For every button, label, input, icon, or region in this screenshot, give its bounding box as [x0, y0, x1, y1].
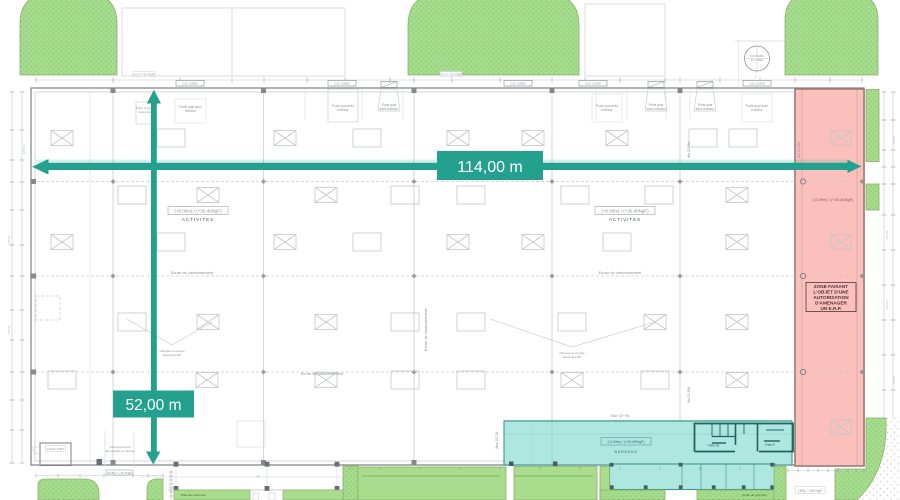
svg-text:ZONE FAISANT: ZONE FAISANT — [814, 284, 849, 289]
svg-text:UN E.R.P.: UN E.R.P. — [820, 306, 841, 311]
svg-text:Cell. LOEW: Cell. LOEW — [749, 82, 765, 86]
svg-text:Ecran de cantonnement: Ecran de cantonnement — [301, 371, 344, 376]
svg-text:Ecran de cantonnement: Ecran de cantonnement — [423, 308, 428, 351]
svg-text:niveleur: niveleur — [751, 108, 763, 112]
svg-text:52,00 m: 52,00 m — [125, 397, 181, 414]
svg-text:(-0.09m) / (+30.69NgF): (-0.09m) / (+30.69NgF) — [608, 440, 645, 444]
svg-text:Mur CF 94: Mur CF 94 — [611, 413, 631, 418]
svg-text:(+0.00m) / (+30.40NgF): (+0.00m) / (+30.40NgF) — [174, 209, 222, 214]
svg-text:Wa 23 PM: Wa 23 PM — [687, 142, 691, 158]
svg-text:BUREAUX: BUREAUX — [615, 450, 638, 454]
svg-text:R = 1500: R = 1500 — [751, 58, 764, 62]
svg-text:descentes EP: descentes EP — [163, 353, 182, 357]
svg-text:ACTIVITES: ACTIVITES — [609, 217, 641, 222]
svg-text:(+0.0 / +30.4NgF): (+0.0 / +30.4NgF) — [440, 73, 462, 77]
svg-text:personnel: personnel — [138, 110, 152, 114]
svg-text:avec niveleur: avec niveleur — [647, 107, 667, 111]
svg-text:44: 44 — [256, 475, 260, 479]
svg-text:Park P: Park P — [765, 443, 775, 447]
svg-text:125.50: 125.50 — [7, 235, 11, 244]
svg-text:Cell. LOEW: Cell. LOEW — [585, 82, 601, 86]
svg-text:125.50: 125.50 — [892, 375, 896, 384]
svg-text:125.50: 125.50 — [885, 230, 889, 239]
svg-text:114,00 m: 114,00 m — [457, 159, 523, 176]
svg-text:Ecran de cantonnement: Ecran de cantonnement — [171, 270, 214, 275]
svg-text:125.50: 125.50 — [7, 325, 11, 334]
svg-text:descentes EP: descentes EP — [563, 355, 582, 359]
svg-text:AUTORISATION: AUTORISATION — [813, 295, 849, 300]
svg-text:D'AMENAGER: D'AMENAGER — [815, 301, 847, 306]
svg-text:(TN) / +30.NgF: (TN) / +30.NgF — [798, 489, 823, 493]
svg-text:Mur CF 94: Mur CF 94 — [495, 432, 499, 449]
svg-text:niveleur: niveleur — [185, 109, 197, 113]
svg-text:niveleur: niveleur — [337, 108, 349, 112]
svg-text:125.50: 125.50 — [892, 135, 896, 144]
svg-text:avec niveleur: avec niveleur — [696, 107, 716, 111]
svg-text:Cell. LOEW: Cell. LOEW — [334, 82, 350, 86]
svg-text:(+0.00m) / (+30.40NgF): (+0.00m) / (+30.40NgF) — [601, 209, 649, 214]
svg-text:(+0.0 / +30.4NgF): (+0.0 / +30.4NgF) — [133, 73, 155, 77]
svg-text:Cell. LOEW: Cell. LOEW — [182, 82, 198, 86]
svg-text:125.50: 125.50 — [22, 145, 26, 154]
svg-text:niveleur: niveleur — [601, 108, 613, 112]
svg-text:Cell. LOEW: Cell. LOEW — [510, 82, 526, 86]
svg-text:avec niveleur: avec niveleur — [380, 107, 400, 111]
svg-text:Wa 23 PM: Wa 23 PM — [797, 142, 801, 158]
svg-text:démontable en attente: démontable en attente — [105, 449, 135, 453]
svg-text:Piste de roulement: Piste de roulement — [181, 493, 206, 497]
svg-text:(LDBL) / +30.0NgF: (LDBL) / +30.0NgF — [107, 471, 132, 475]
svg-text:ACTIVITES: ACTIVITES — [182, 217, 214, 222]
svg-text:Wa 23 PM: Wa 23 PM — [687, 387, 691, 403]
svg-text:LOCAL TGBT: LOCAL TGBT — [47, 447, 65, 451]
svg-text:Ecran de cantonnement: Ecran de cantonnement — [599, 270, 642, 275]
svg-text:(-0.09m) / (+30.40NgF): (-0.09m) / (+30.40NgF) — [812, 197, 854, 202]
svg-text:125.50: 125.50 — [885, 300, 889, 309]
svg-text:Limite de propriété: Limite de propriété — [742, 493, 767, 497]
svg-text:Park A1: Park A1 — [708, 444, 719, 448]
svg-text:L'OBJET D'UNE: L'OBJET D'UNE — [813, 290, 848, 295]
